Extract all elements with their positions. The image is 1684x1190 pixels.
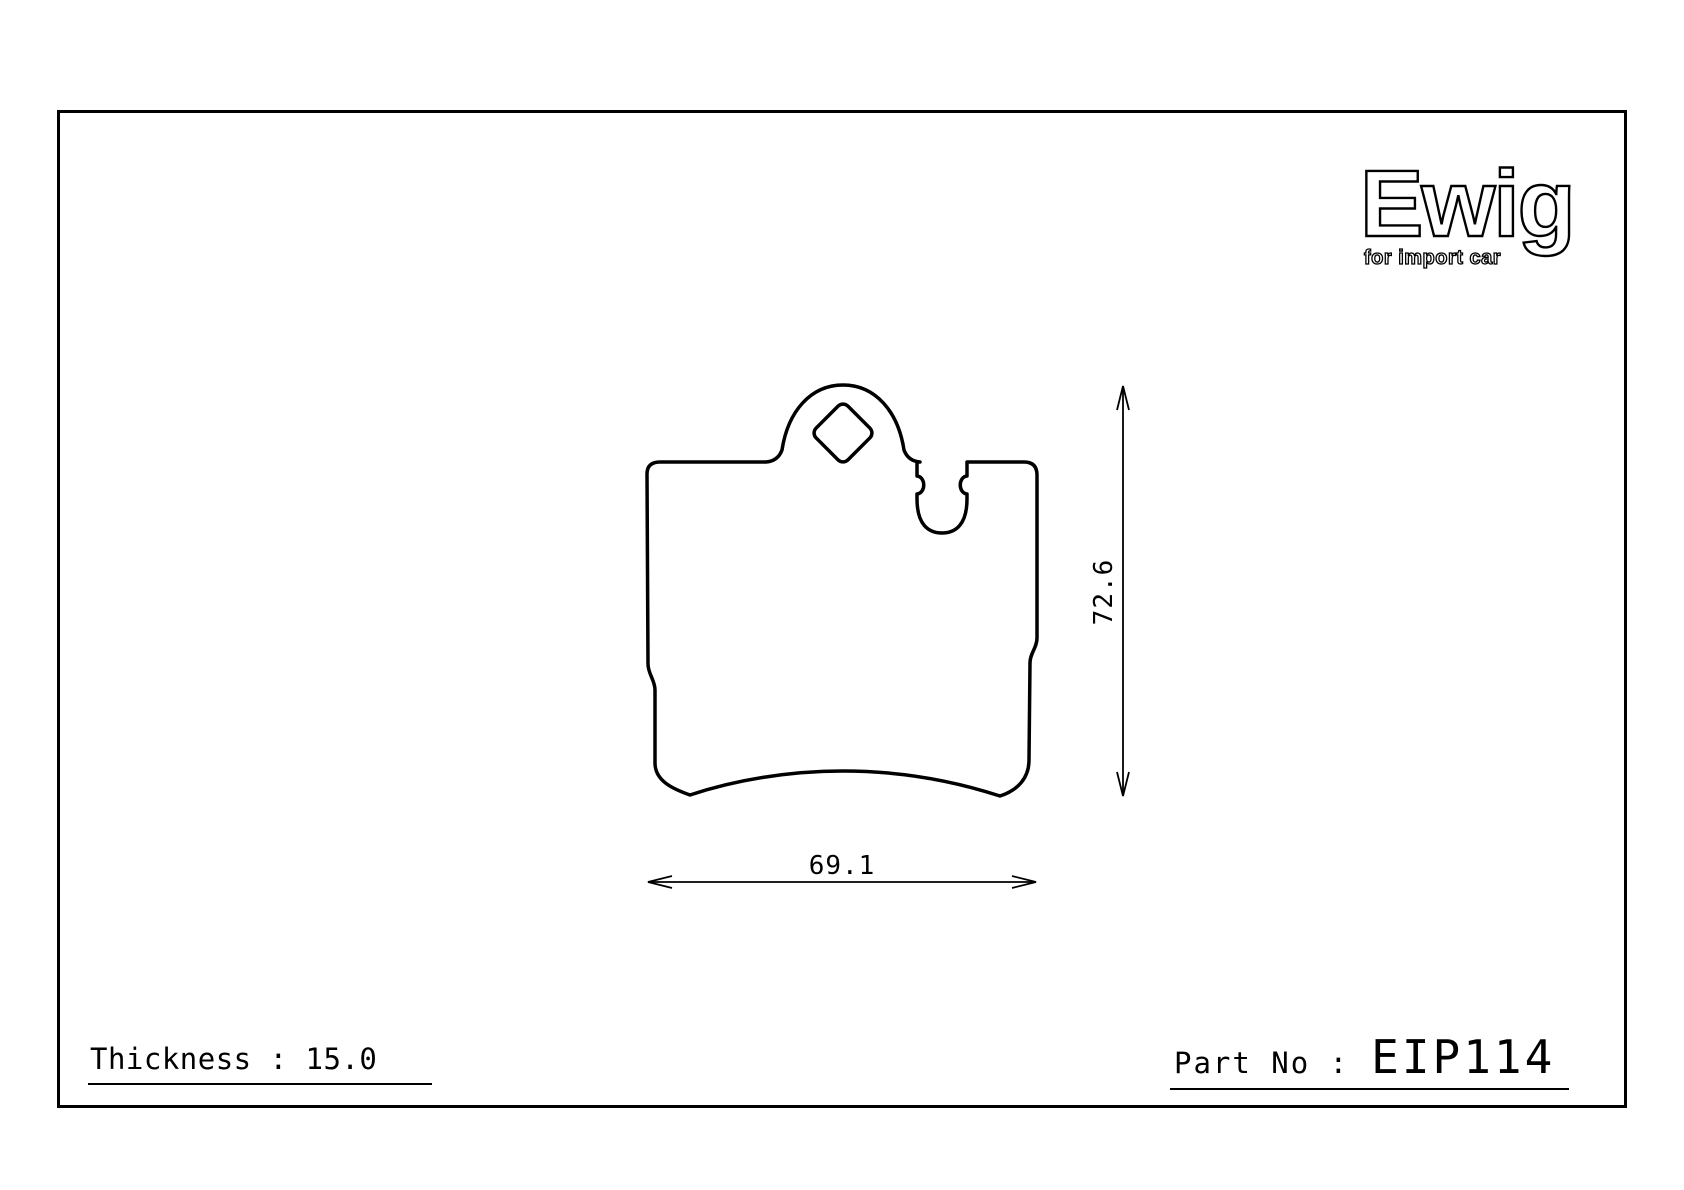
part-no-block: Part No : EIP114 xyxy=(1170,1030,1569,1090)
drawing-sheet: Ewig for import car 72.6 69.1 Thickness … xyxy=(0,0,1684,1190)
thickness-label: Thickness : 15.0 xyxy=(88,1042,432,1085)
width-dimension-label: 69.1 xyxy=(809,851,876,881)
part-no-value: EIP114 xyxy=(1371,1030,1555,1084)
part-no-label: Part No : xyxy=(1174,1046,1349,1080)
brake-pad-outline xyxy=(647,385,1037,796)
height-dimension-label: 72.6 xyxy=(1089,559,1119,626)
diamond-hole xyxy=(811,401,875,465)
brake-pad-drawing: 72.6 69.1 xyxy=(0,0,1684,1190)
